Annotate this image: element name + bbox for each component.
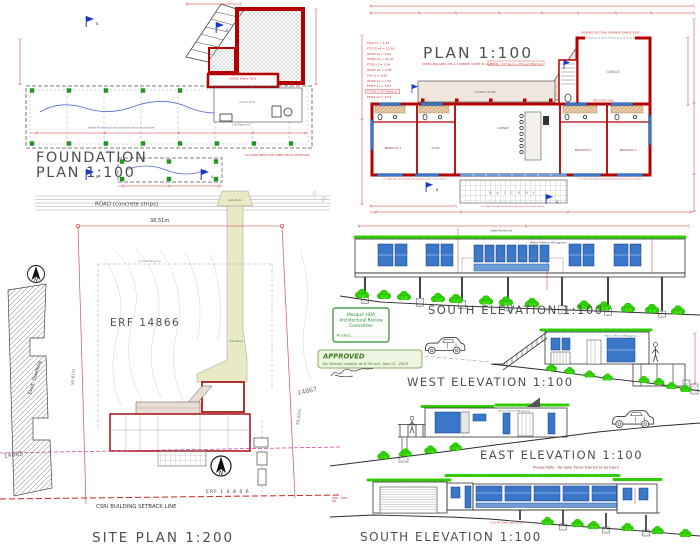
schedule-row: FTW1 x2 = 2,52 [367, 95, 391, 99]
services [254, 420, 268, 492]
room-label-lounge: LOUNGE [497, 126, 509, 130]
garage-block [373, 482, 447, 513]
garage-door-note: UPGRADED SECTIONAL OVERHEAD GARAGE DOOR [581, 32, 640, 35]
schedule-row: W240 x2 = 9,38 [367, 68, 392, 72]
reference-dashes [332, 498, 347, 501]
balustrade-note: 1m High Glass Balustrade with openings o… [383, 177, 447, 180]
section-letter: B [96, 22, 99, 26]
floor-plan-title: PLAN 1:100 [423, 44, 533, 62]
room-label-garage: GARAGE [606, 70, 619, 74]
section-letter: B [436, 188, 439, 192]
schedule-row: W450 x1 = 6,42 [367, 52, 392, 56]
room-label-study: STUDY [432, 146, 441, 150]
balustrade-note: 1m High Glass Balustrade with openings o… [579, 177, 643, 180]
water-tank-label: 5000L Water Tank [230, 77, 257, 81]
contour-label: 90 [320, 195, 327, 202]
water-tank: 5000L Water Tank [208, 74, 278, 87]
east-boundary-dim: 93,02m [295, 409, 302, 426]
person-icon [409, 416, 415, 433]
main-wing: BEDROOM 1 STUDY LOUNGE BEDROOM 2 BEDROOM… [371, 103, 652, 177]
signature-mark [331, 369, 373, 377]
downpipes-note: ALL DOWN PIPES TO BE CONNECTED TO WATER … [245, 154, 310, 157]
road-boundary-dim: 38,51m [150, 218, 169, 224]
pipe-note: ±110 PVC Sewer pipe 1:60 fall [490, 522, 524, 525]
elevation-windows [551, 338, 635, 364]
paint-note: Plaster & Paint to HOA approval [530, 242, 567, 245]
site-plan-drawing: ROAD (concrete strips) 35 90 Grass Block… [0, 190, 340, 545]
west-boundary-dim: 93,61m [70, 369, 76, 385]
north-arrow-icon: N [28, 266, 45, 284]
floor-slab-line [447, 510, 660, 513]
area-note-boxed: TOTAL : 277 sq.m + 35 sq.m Balcony [489, 62, 542, 66]
section-flag-icon [426, 182, 433, 192]
plumbing-note: Sewer Plumbing to be positioned as far a… [88, 126, 155, 130]
store-block [209, 48, 235, 72]
driveway-label: Grass Blocks [229, 340, 244, 343]
north-letter: N [219, 470, 224, 477]
approved-stamp: APPROVED By Marais Visagie at 8:30 pm, S… [318, 350, 422, 368]
schedule-total-row: TOTAL = 82,56sq.m [366, 90, 397, 94]
approved-label: APPROVED [322, 353, 365, 361]
room-label-bedroom3: BEDROOM 3 [620, 148, 637, 152]
erf-label-small: ERF 1 4 8 6 6 [206, 489, 250, 495]
approved-byline: By Marais Visagie at 8:30 pm, Sep 21, 20… [323, 361, 409, 366]
foundation-title-line1: FOUNDATION [36, 150, 147, 166]
elevation-dimension [694, 333, 697, 385]
south-elevation-lower-drawing: ±110 PVC Sewer pipe 1:60 fall SOUTH ELEV… [330, 460, 700, 545]
north-letter: N [34, 278, 38, 284]
retaining-wall-note: 1.8m Retain wall [232, 124, 251, 127]
section-flag-icon [86, 16, 94, 27]
hoa-line2: Architectural Review [339, 318, 383, 323]
driveway: Grass Blocks Grass Blocks [197, 191, 253, 382]
paint-note: Plaster & Paint to HOA approval [498, 410, 530, 413]
schedule-row: FTD70 x4 = 22,68 [367, 46, 394, 50]
hoa-line3: Committee [349, 323, 373, 328]
schedule-row: FW2 x1 = 1,44 [367, 41, 389, 45]
covered-stoep: COVERED STOEP [418, 81, 555, 102]
road: ROAD (concrete strips) [35, 196, 330, 210]
court-yard-label: Court Yard [239, 100, 255, 104]
car-icon [612, 411, 653, 428]
glazed-band [447, 483, 617, 510]
section-flag-icon [201, 169, 209, 180]
garage: UPGRADED SECTIONAL OVERHEAD GARAGE DOOR … [577, 32, 650, 107]
hoa-review-box: Mosquit HOA Architectural Review Committ… [333, 308, 389, 342]
schedule-row: FTW2 x1 = 3,84 [367, 84, 391, 88]
right-block [617, 484, 657, 513]
building-line-label: 1.6m Building line [138, 259, 161, 263]
covered-stoep-label: COVERED STOEP [474, 90, 496, 94]
stair-balustrade [493, 332, 547, 370]
schedule-row: FT28 x2 = 1,94 [367, 63, 390, 67]
paint-note: Plaster & Paint to HOA approval [605, 335, 637, 338]
balcony-label: B A L C O N Y [489, 191, 536, 195]
elevation-windows [435, 412, 555, 436]
site-plan-title: SITE PLAN 1:200 [92, 530, 234, 545]
schedule-row: W160 x1 = 1,62 [367, 79, 392, 83]
car-icon [425, 338, 465, 354]
balustrade-note: 1m High Glass Balustrade with openings o… [481, 205, 545, 208]
elevation-windows [378, 244, 641, 271]
csri-setback-line [0, 495, 340, 499]
courtyard-block [237, 9, 303, 83]
south-elevation-upper-title: SOUTH ELEVATION 1:100 [428, 303, 604, 317]
existing-dwelling: Exist. Dwelling [8, 284, 52, 496]
setback-label: CSRI BUILDING SETBACK LINE [96, 504, 177, 510]
building-footprint [110, 382, 250, 466]
room-label-bedroom1: BEDROOM 1 [385, 146, 402, 150]
schedule-row: FW x1 = 0,81 [367, 73, 388, 77]
contour-label: 35 [311, 189, 318, 196]
fire-door-note: FIRE DOOR & WALL [593, 100, 615, 103]
driveway-label: Grass Blocks [228, 199, 243, 202]
person-icon [652, 343, 658, 362]
north-arrow-icon: N [211, 456, 231, 477]
approval-area: Mosquit HOA Architectural Review Committ… [315, 302, 430, 384]
court-yard: Court Yard 1.8m Retain wall [214, 88, 302, 127]
schedule-row: W300 x4 = 21,70 [367, 57, 393, 61]
neighbor-erf-label: 14867 [297, 386, 318, 397]
roof-note: Grass Planted roof [490, 230, 512, 233]
drawing-sheet: 5000L Water Tank Court Yard 1.8m Retain … [0, 0, 700, 545]
foundation-title-line2: PLAN 1:100 [36, 165, 135, 181]
window-schedule: FW2 x1 = 1,44 FTD70 x4 = 22,68 W450 x1 =… [366, 41, 400, 99]
floor-slab [355, 273, 685, 277]
west-elevation-drawing: Plaster & Paint to HOA approval WEST ELE… [395, 320, 700, 398]
erf-label: ERF 14866 [110, 317, 180, 329]
trustee-label: Trustee: [335, 333, 351, 338]
section-letter: A [211, 175, 214, 179]
foundation-plan-drawing: 5000L Water Tank Court Yard 1.8m Retain … [0, 0, 345, 195]
balcony: B A L C O N Y [460, 180, 567, 203]
area-note: DWELLING AREA 236 + COVERED STOEP 41 sq.… [423, 62, 493, 66]
floor-plan-drawing: FW2 x1 = 1,44 FTD70 x4 = 22,68 W450 x1 =… [355, 0, 700, 222]
roof-vent [527, 398, 540, 408]
road-label: ROAD (concrete strips) [95, 202, 158, 208]
west-elevation-title: WEST ELEVATION 1:100 [407, 375, 574, 389]
south-elevation-lower-title: SOUTH ELEVATION 1:100 [360, 530, 542, 544]
room-label-bedroom2: BEDROOM 2 [575, 148, 592, 152]
entry-lobby [559, 60, 577, 106]
section-flag-icon [412, 84, 418, 93]
